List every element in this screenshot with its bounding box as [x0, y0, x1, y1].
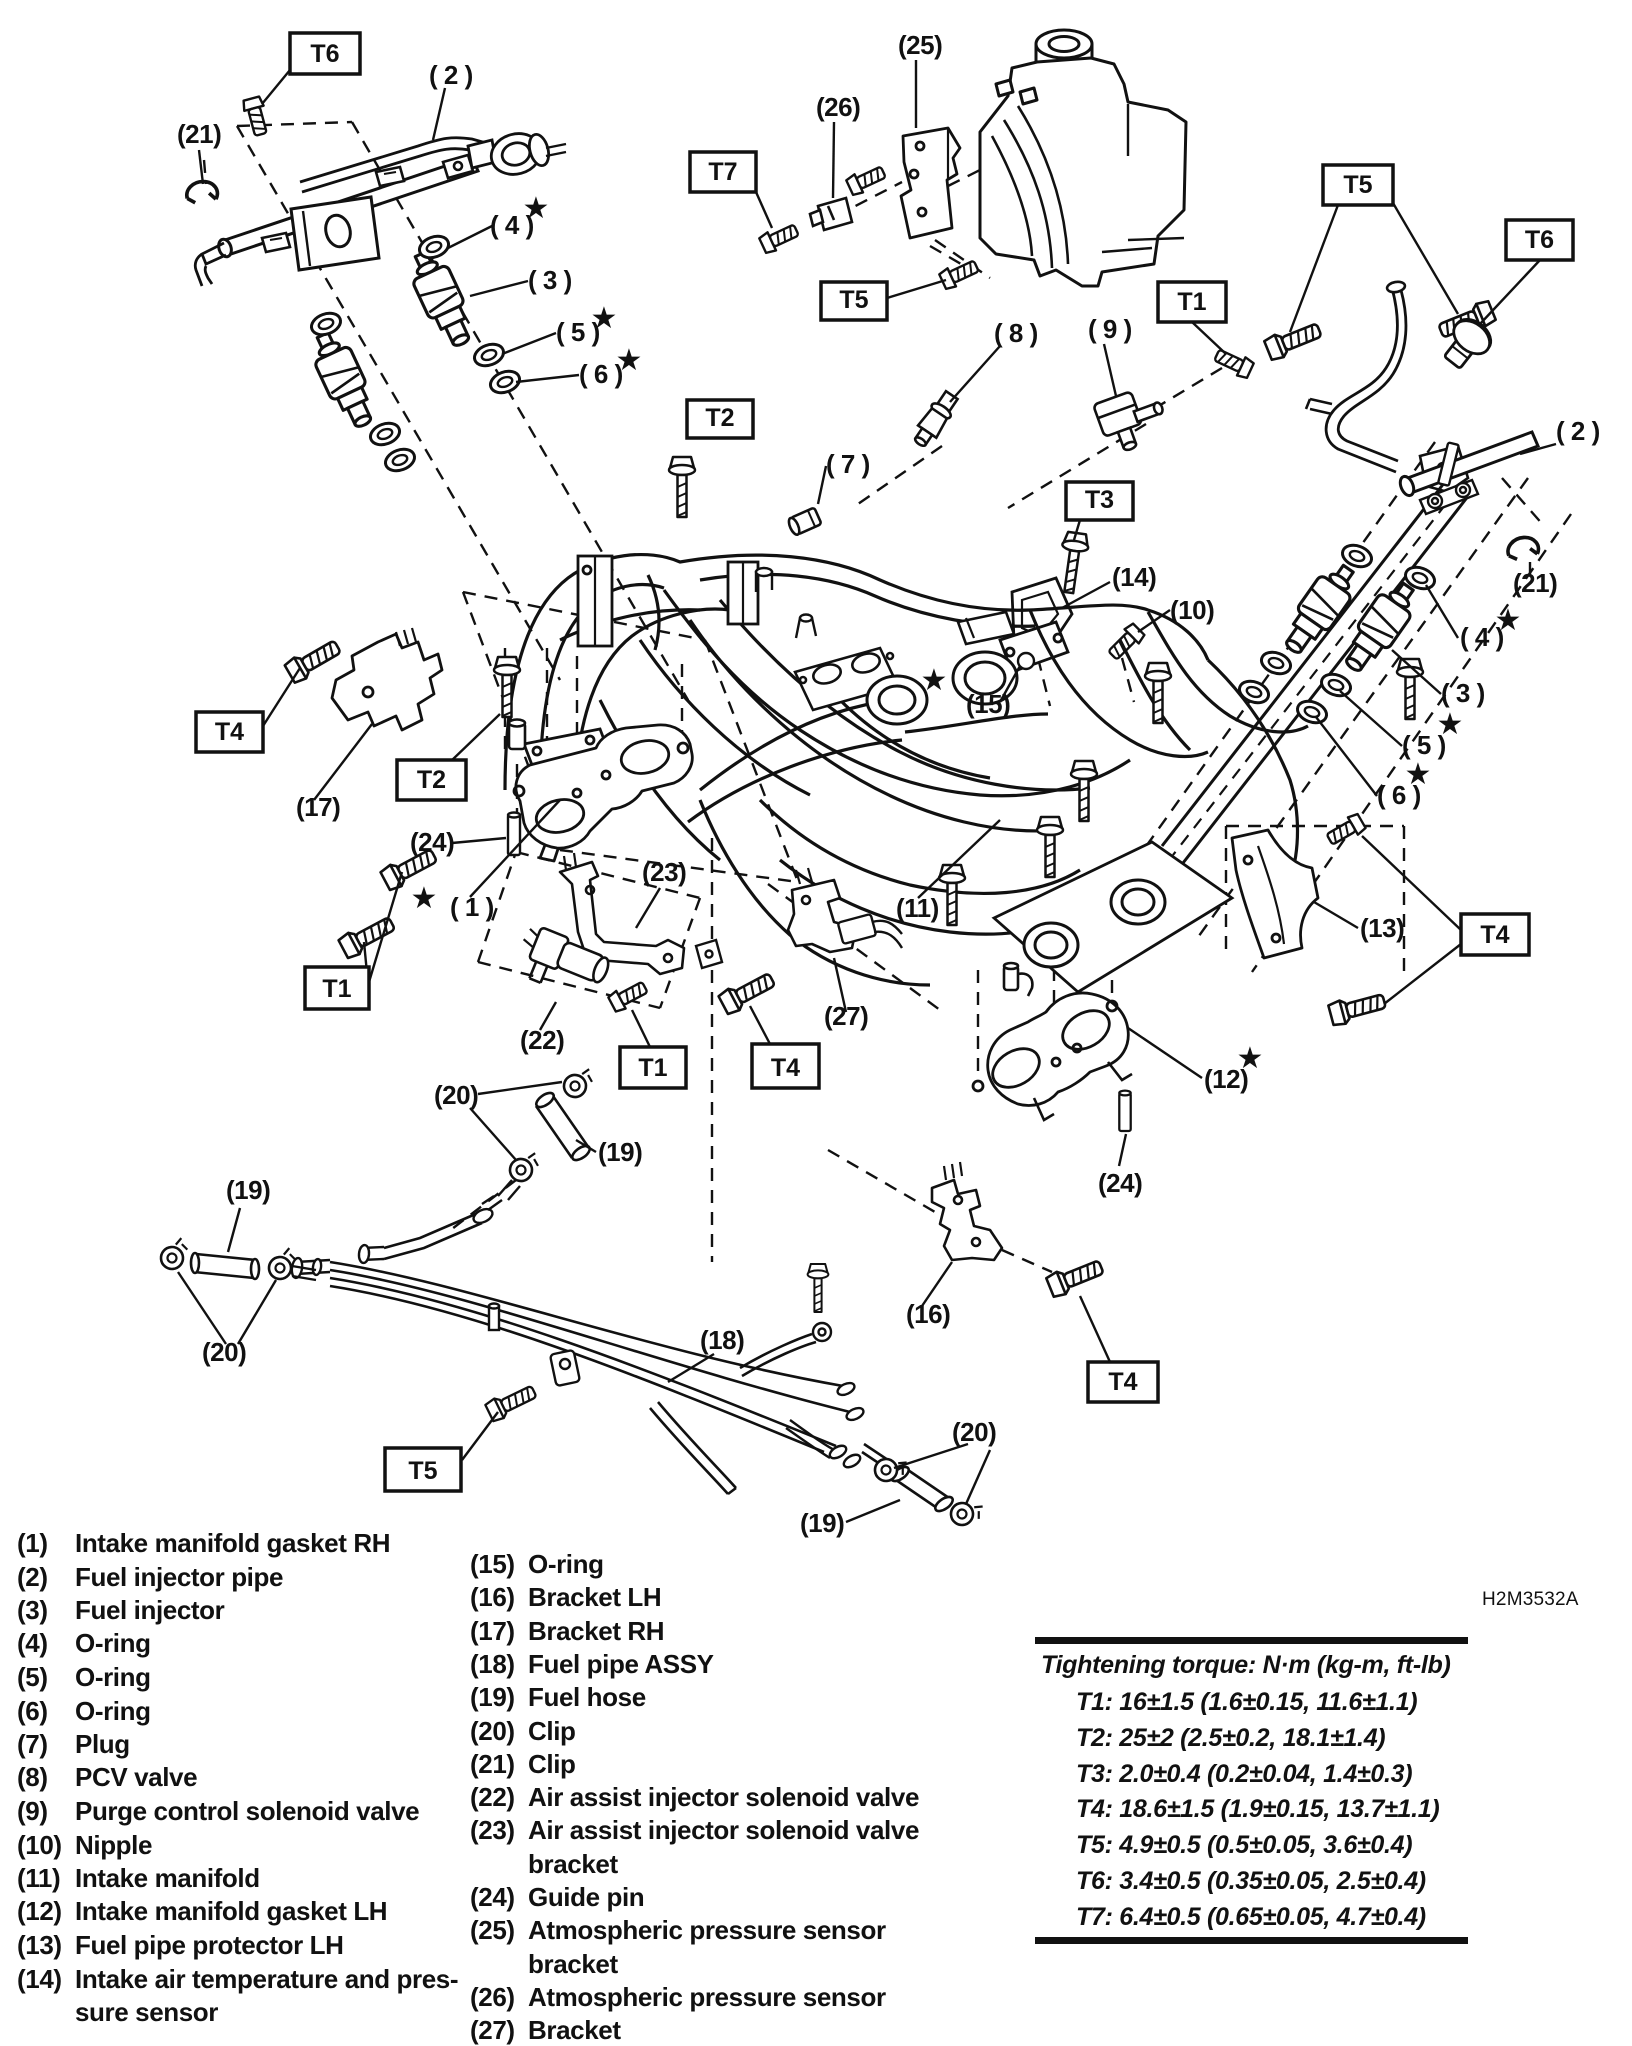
svg-text:T2: T2 — [705, 404, 734, 432]
svg-text:T6: T6 — [1525, 226, 1554, 254]
svg-text:Fuel pipe protector LH: Fuel pipe protector LH — [75, 1930, 344, 1960]
svg-text:(24): (24) — [470, 1882, 515, 1912]
svg-text:(21): (21) — [177, 119, 221, 149]
svg-text:Atmospheric pressure sensor: Atmospheric pressure sensor — [528, 1915, 886, 1945]
svg-text:Air assist injector solenoid v: Air assist injector solenoid valve — [528, 1782, 919, 1812]
svg-text:bracket: bracket — [528, 1949, 618, 1979]
svg-text:Intake manifold gasket LH: Intake manifold gasket LH — [75, 1896, 387, 1926]
svg-text:Intake manifold gasket RH: Intake manifold gasket RH — [75, 1528, 390, 1558]
svg-text:(16): (16) — [906, 1299, 950, 1329]
svg-text:sure sensor: sure sensor — [75, 1997, 218, 2027]
svg-text:(13): (13) — [17, 1930, 62, 1960]
svg-text:T4: T4 — [215, 718, 244, 746]
svg-text:★: ★ — [1495, 604, 1522, 637]
svg-text:O-ring: O-ring — [75, 1662, 151, 1692]
svg-text:( 9 ): ( 9 ) — [1088, 314, 1132, 344]
svg-text:T5: T5 — [1343, 171, 1372, 199]
svg-text:T2: 25±2 (2.5±0.2, 18.1±1.4): T2: 25±2 (2.5±0.2, 18.1±1.4) — [1076, 1724, 1385, 1752]
svg-text:T3: T3 — [1085, 486, 1114, 514]
svg-text:(12): (12) — [17, 1896, 62, 1926]
svg-text:T4: 18.6±1.5 (1.9±0.15, 13.7±1: T4: 18.6±1.5 (1.9±0.15, 13.7±1.1) — [1076, 1795, 1439, 1823]
svg-text:T5: T5 — [839, 286, 868, 314]
svg-text:(5): (5) — [17, 1662, 48, 1692]
svg-text:(18): (18) — [470, 1649, 515, 1679]
svg-text:(23): (23) — [642, 857, 686, 887]
svg-text:(22): (22) — [470, 1782, 515, 1812]
svg-text:(21): (21) — [1513, 568, 1557, 598]
svg-text:(2): (2) — [17, 1562, 48, 1592]
svg-text:(25): (25) — [470, 1915, 515, 1945]
svg-text:(18): (18) — [700, 1325, 744, 1355]
svg-text:Plug: Plug — [75, 1729, 130, 1759]
svg-text:T1: T1 — [638, 1054, 667, 1082]
svg-text:(8): (8) — [17, 1762, 48, 1792]
svg-text:Bracket RH: Bracket RH — [528, 1616, 664, 1646]
svg-text:T1: 16±1.5 (1.6±0.15, 11.6±1.1: T1: 16±1.5 (1.6±0.15, 11.6±1.1) — [1076, 1688, 1417, 1716]
svg-text:(21): (21) — [470, 1749, 515, 1779]
svg-text:(9): (9) — [17, 1796, 48, 1826]
svg-text:Tightening torque: N·m (kg-m,: Tightening torque: N·m (kg-m, ft-lb) — [1041, 1651, 1451, 1679]
svg-text:★: ★ — [1237, 1042, 1264, 1075]
svg-text:( 8 ): ( 8 ) — [994, 318, 1038, 348]
svg-text:★: ★ — [1437, 708, 1464, 741]
svg-text:T6: 3.4±0.5 (0.35±0.05, 2.5±0.: T6: 3.4±0.5 (0.35±0.05, 2.5±0.4) — [1076, 1867, 1426, 1895]
svg-text:Fuel hose: Fuel hose — [528, 1682, 646, 1712]
svg-text:Clip: Clip — [528, 1716, 576, 1746]
svg-text:T5: T5 — [408, 1457, 437, 1485]
svg-text:(19): (19) — [800, 1508, 844, 1538]
svg-text:( 3 ): ( 3 ) — [1441, 678, 1485, 708]
svg-text:( 1 ): ( 1 ) — [450, 892, 494, 922]
svg-text:(3): (3) — [17, 1595, 48, 1625]
svg-text:(25): (25) — [898, 30, 942, 60]
svg-text:O-ring: O-ring — [75, 1628, 151, 1658]
svg-text:(26): (26) — [816, 92, 860, 122]
svg-text:Fuel pipe ASSY: Fuel pipe ASSY — [528, 1649, 714, 1679]
svg-text:(17): (17) — [470, 1616, 515, 1646]
svg-text:Bracket: Bracket — [528, 2015, 621, 2045]
svg-text:Purge control solenoid valve: Purge control solenoid valve — [75, 1796, 419, 1826]
svg-text:T1: T1 — [322, 975, 351, 1003]
svg-text:Fuel injector pipe: Fuel injector pipe — [75, 1562, 283, 1592]
svg-text:(20): (20) — [434, 1080, 478, 1110]
svg-text:PCV valve: PCV valve — [75, 1762, 197, 1792]
svg-text:O-ring: O-ring — [75, 1696, 151, 1726]
svg-text:(11): (11) — [17, 1863, 60, 1893]
svg-text:★: ★ — [921, 664, 948, 697]
svg-text:T3: 2.0±0.4 (0.2±0.04, 1.4±0.3: T3: 2.0±0.4 (0.2±0.04, 1.4±0.3) — [1076, 1760, 1412, 1788]
svg-text:★: ★ — [411, 882, 438, 915]
svg-text:(27): (27) — [470, 2015, 515, 2045]
svg-text:(26): (26) — [470, 1982, 515, 2012]
svg-text:★: ★ — [591, 302, 618, 335]
svg-text:(20): (20) — [952, 1417, 996, 1447]
svg-text:(23): (23) — [470, 1815, 515, 1845]
svg-text:(4): (4) — [17, 1628, 48, 1658]
svg-text:★: ★ — [616, 344, 643, 377]
svg-text:(19): (19) — [470, 1682, 515, 1712]
svg-text:H2M3532A: H2M3532A — [1482, 1589, 1579, 1610]
svg-text:bracket: bracket — [528, 1849, 618, 1879]
svg-text:(1): (1) — [17, 1528, 48, 1558]
svg-text:T7: 6.4±0.5 (0.65±0.05, 4.7±0.: T7: 6.4±0.5 (0.65±0.05, 4.7±0.4) — [1076, 1903, 1426, 1931]
svg-text:( 3 ): ( 3 ) — [528, 265, 572, 295]
svg-text:(27): (27) — [824, 1001, 868, 1031]
svg-text:( 7 ): ( 7 ) — [826, 449, 870, 479]
svg-text:Intake manifold: Intake manifold — [75, 1863, 260, 1893]
svg-text:T5: 4.9±0.5 (0.5±0.05, 3.6±0.4: T5: 4.9±0.5 (0.5±0.05, 3.6±0.4) — [1076, 1831, 1412, 1859]
svg-text:(15): (15) — [470, 1549, 515, 1579]
svg-text:Fuel injector: Fuel injector — [75, 1595, 225, 1625]
svg-text:(16): (16) — [470, 1582, 515, 1612]
svg-text:Atmospheric pressure sensor: Atmospheric pressure sensor — [528, 1982, 886, 2012]
svg-text:T7: T7 — [708, 158, 737, 186]
svg-text:T1: T1 — [1177, 288, 1206, 316]
svg-text:(24): (24) — [410, 827, 454, 857]
svg-text:T4: T4 — [1108, 1368, 1137, 1396]
svg-text:(22): (22) — [520, 1025, 564, 1055]
svg-text:Air assist injector solenoid v: Air assist injector solenoid valve — [528, 1815, 919, 1845]
svg-text:(19): (19) — [226, 1175, 270, 1205]
svg-text:(14): (14) — [1112, 562, 1156, 592]
svg-text:(13): (13) — [1360, 913, 1404, 943]
svg-text:T4: T4 — [771, 1054, 800, 1082]
svg-text:Nipple: Nipple — [75, 1830, 152, 1860]
svg-text:T2: T2 — [417, 766, 446, 794]
svg-text:Intake air temperature and pre: Intake air temperature and pres- — [75, 1964, 458, 1994]
svg-text:(19): (19) — [598, 1137, 642, 1167]
svg-text:(6): (6) — [17, 1696, 48, 1726]
svg-text:(10): (10) — [1170, 595, 1214, 625]
svg-text:(24): (24) — [1098, 1168, 1142, 1198]
svg-text:Guide pin: Guide pin — [528, 1882, 644, 1912]
svg-text:T4: T4 — [1480, 921, 1509, 949]
svg-text:Bracket LH: Bracket LH — [528, 1582, 661, 1612]
svg-text:★: ★ — [523, 192, 550, 225]
svg-text:(11): (11) — [896, 893, 939, 923]
svg-text:Clip: Clip — [528, 1749, 576, 1779]
svg-text:★: ★ — [1405, 758, 1432, 791]
svg-text:(17): (17) — [296, 792, 340, 822]
svg-text:T6: T6 — [310, 40, 339, 68]
svg-text:( 2 ): ( 2 ) — [1556, 416, 1600, 446]
svg-text:(14): (14) — [17, 1964, 62, 1994]
svg-text:(15): (15) — [966, 689, 1010, 719]
svg-text:(7): (7) — [17, 1729, 48, 1759]
svg-text:(20): (20) — [202, 1337, 246, 1367]
svg-text:(10): (10) — [17, 1830, 62, 1860]
svg-text:(20): (20) — [470, 1716, 515, 1746]
svg-text:( 2 ): ( 2 ) — [429, 60, 473, 90]
svg-text:O-ring: O-ring — [528, 1549, 604, 1579]
